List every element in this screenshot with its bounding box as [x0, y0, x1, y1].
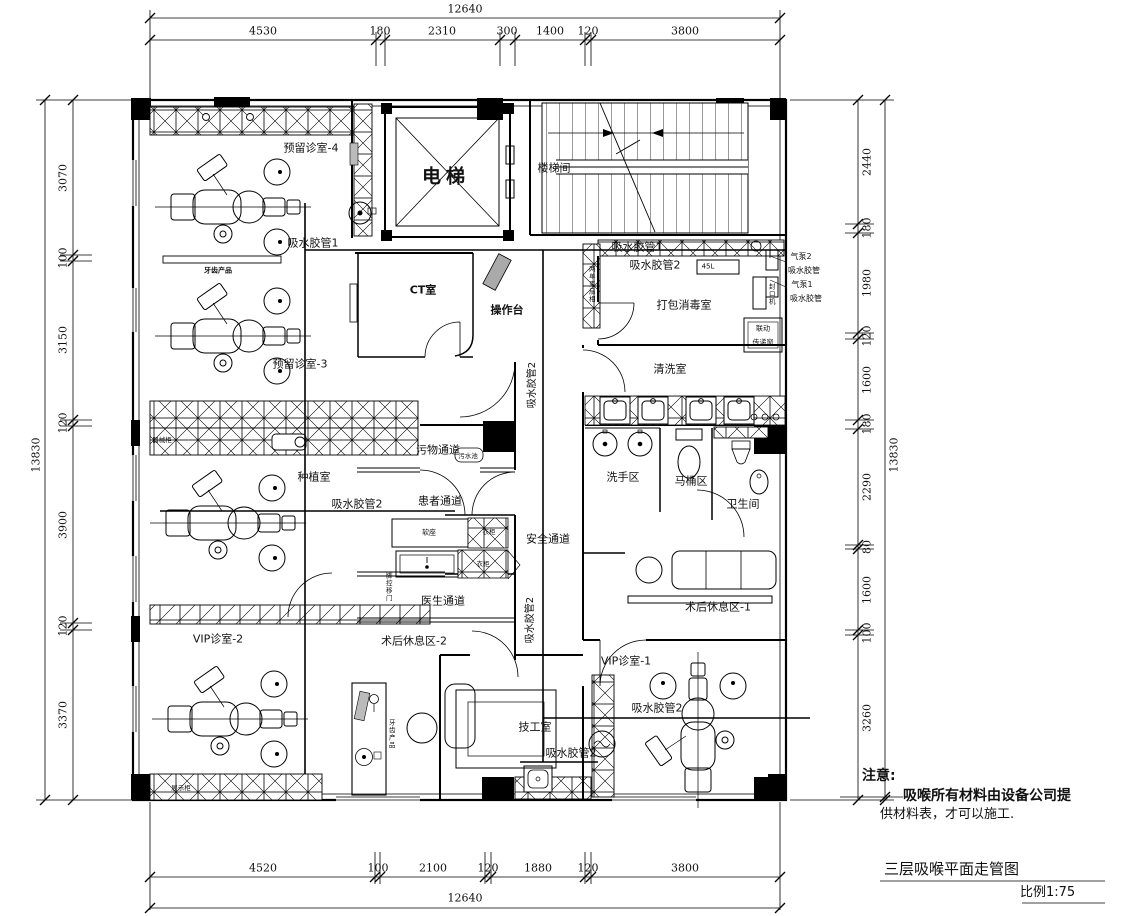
dim-left-seg4: 3900	[58, 511, 69, 539]
dim-right-total: 13830	[889, 438, 900, 473]
pipe-label-hose2-technician: 吸水胶管2	[546, 748, 597, 759]
pipe-label-hose1-b: 吸水胶管1	[612, 242, 663, 253]
dim-right-seg4: 1600	[862, 366, 873, 394]
pipe-label-hose1-a: 吸水胶管1	[288, 238, 339, 249]
label-display-cabinet: 展示柜	[171, 785, 191, 792]
dim-top-seg5: 120	[578, 26, 599, 37]
label-interlock: 联动	[756, 326, 770, 333]
dim-top-seg0: 4530	[249, 26, 277, 37]
room-label-pack-disinfect: 打包消毒室	[657, 300, 712, 311]
dental-chair	[152, 666, 308, 767]
label-wardrobe-a: 衣柜	[483, 529, 496, 536]
dim-top-seg4: 1400	[536, 26, 564, 37]
dim-right-seg10: 3260	[862, 704, 873, 732]
room-label-reserved4: 预留诊室-4	[284, 143, 339, 154]
dim-top-seg1: 180	[370, 26, 391, 37]
label-air-pump1: 气泵1	[791, 281, 812, 289]
dim-right-seg6: 2290	[862, 473, 873, 501]
label-tank-45l: 45L	[702, 264, 715, 271]
floorplan-page: 预留诊室-4 预留诊室-3 电梯 楼梯间 CT室 操作台 打包消毒室 清洗室 洗…	[0, 0, 1121, 916]
room-label-stairwell: 楼梯间	[538, 163, 571, 174]
dim-bottom-seg5: 120	[578, 863, 599, 874]
dim-right-seg5: 180	[862, 414, 873, 435]
dim-right-seg3: 120	[862, 326, 873, 347]
room-label-bathroom: 卫生间	[727, 499, 760, 510]
pipe-label-hose2-vertical-1: 吸水胶管2	[528, 362, 538, 408]
dim-right-seg8: 1600	[862, 576, 873, 604]
dim-bottom-total: 12640	[448, 893, 483, 904]
dim-right-seg1: 180	[862, 218, 873, 239]
room-label-vip1: VIP诊室-1	[601, 656, 651, 667]
room-label-implant: 种植室	[298, 472, 331, 483]
room-label-technician: 技工室	[519, 722, 552, 733]
floorplan-drawing	[0, 0, 1121, 916]
dental-chair	[645, 652, 746, 808]
room-label-elevator: 电梯	[422, 168, 470, 187]
room-label-handwash: 洗手区	[607, 472, 640, 483]
dim-left-seg2: 3150	[58, 326, 69, 354]
label-shaft: 两单束扇相	[588, 265, 595, 303]
label-mop-sink: 污水池	[458, 453, 478, 460]
room-label-cleaning: 清洗室	[654, 364, 687, 375]
room-label-reserved3: 预留诊室-3	[273, 359, 328, 370]
pipe-label-hose2-vertical-2: 吸水胶管2	[526, 597, 536, 643]
room-label-rest1: 术后休息区-1	[685, 602, 751, 613]
dim-left-seg1: 100	[58, 248, 69, 269]
pipe-label-hose2-vip1: 吸水胶管2	[632, 703, 683, 714]
dim-right-seg9: 100	[862, 623, 873, 644]
label-dental-shelf: 牙齿产品	[204, 268, 232, 275]
dim-top-seg3: 300	[497, 26, 518, 37]
drawing-scale: 比例1:75	[1020, 886, 1075, 901]
dim-right-seg0: 2440	[862, 148, 873, 176]
dim-bottom-seg6: 3800	[671, 863, 699, 874]
label-instrument-cabinet: 器械柜	[152, 437, 172, 444]
dim-top-seg6: 3800	[671, 26, 699, 37]
label-hose-a: 吸水胶管	[788, 267, 820, 275]
label-pass-window: 传递窗	[753, 340, 774, 347]
dim-bottom-seg2: 2100	[419, 863, 447, 874]
dim-right-seg2: 1980	[862, 269, 873, 297]
pipe-label-hose2-a: 吸水胶管2	[630, 260, 681, 271]
dim-bottom-seg0: 4520	[249, 863, 277, 874]
label-air-pump2: 气泵2	[790, 253, 811, 261]
dim-top-seg2: 2310	[428, 26, 456, 37]
dim-left-seg3: 120	[58, 413, 69, 434]
drawing-title: 三层吸喉平面走管图	[884, 861, 1019, 878]
room-label-dirty-corridor: 污物通道	[416, 445, 460, 456]
label-hose-b: 吸水胶管	[790, 295, 822, 303]
dim-left-seg5: 120	[58, 616, 69, 637]
room-label-safety-corridor: 安全通道	[526, 534, 570, 545]
note-line1: 吸喉所有材料由设备公司提	[903, 788, 1071, 804]
label-wardrobe-b: 衣柜	[477, 561, 490, 568]
dental-chair	[150, 470, 306, 571]
dim-bottom-seg1: 100	[368, 863, 389, 874]
dim-left-seg6: 3370	[58, 701, 69, 729]
label-dental-cabinet: 牙齿产品	[388, 719, 395, 749]
dim-bottom-seg4: 1880	[524, 863, 552, 874]
label-foot-door: 脚控移门	[385, 572, 392, 602]
note-line2: 供材料表，才可以施工.	[880, 808, 1014, 823]
room-label-toilet-zone: 马桶区	[675, 476, 708, 487]
label-sealer: 封口机	[768, 283, 775, 306]
room-label-patient-corridor: 患者通道	[418, 496, 462, 507]
sanitary-fixtures	[455, 396, 785, 792]
note-attention: 注意:	[862, 768, 896, 784]
dim-right-seg7: 80	[862, 540, 873, 554]
room-label-vip2: VIP诊室-2	[193, 634, 243, 645]
room-label-rest2: 术后休息区-2	[381, 636, 447, 647]
room-label-doctor-corridor: 医生通道	[421, 596, 465, 607]
label-soft-seat: 软座	[422, 530, 436, 537]
pipe-label-hose2-b: 吸水胶管2	[332, 499, 383, 510]
room-label-console: 操作台	[491, 305, 524, 316]
dim-left-total: 13830	[31, 438, 42, 473]
dim-left-seg0: 3070	[58, 164, 69, 192]
dim-bottom-seg3: 120	[478, 863, 499, 874]
room-label-ct: CT室	[410, 285, 437, 296]
dim-top-total: 12640	[448, 4, 483, 15]
